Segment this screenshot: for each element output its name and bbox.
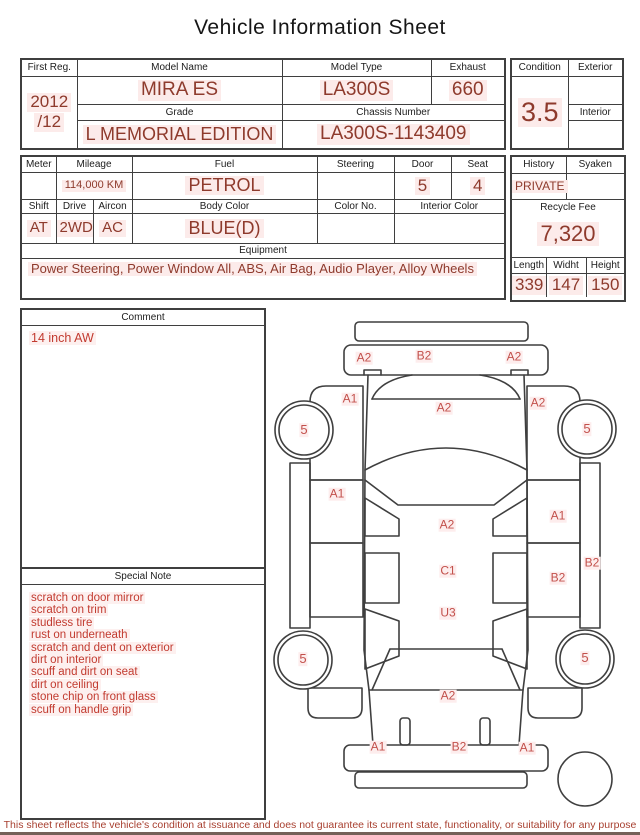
meter-header: Meter (21, 156, 56, 172)
special-note-item: scratch on door mirror (22, 592, 264, 604)
door-value: 5 (394, 172, 451, 199)
special-note-item: scuff and dirt on seat (22, 666, 264, 678)
vehicle-identity-table: First Reg. Model Name Model Type Exhaust… (20, 58, 506, 150)
width-header: Widht (546, 258, 586, 273)
marker-front-bumper-right: A2 (506, 351, 523, 364)
special-note-item: scratch on trim (22, 604, 264, 616)
special-note-box: Special Note scratch on door mirror scra… (20, 567, 266, 820)
color-no-header: Color No. (317, 199, 394, 213)
rear-strip-shape (355, 772, 527, 788)
fuel-value: PETROL (132, 172, 317, 199)
special-note-list: scratch on door mirror scratch on trim s… (22, 585, 264, 716)
seat-value: 4 (451, 172, 505, 199)
first-reg-value: 2012 /12 (21, 76, 77, 149)
left-sill-shape (290, 463, 310, 628)
model-name-value: MIRA ES (77, 76, 282, 104)
special-note-item: dirt on ceiling (22, 679, 264, 691)
first-reg-month: /12 (34, 113, 64, 131)
exhaust-value: 660 (431, 76, 505, 104)
model-type-value: LA300S (282, 76, 431, 104)
special-note-item: scratch and dent on exterior (22, 642, 264, 654)
chassis-number-header: Chassis Number (282, 104, 505, 120)
drive-value: 2WD (56, 213, 93, 243)
length-value: 339 (512, 273, 546, 297)
marker-wheel-rear-left: 5 (298, 652, 307, 666)
grade-value: L MEMORIAL EDITION (77, 120, 282, 149)
exhaust-header: Exhaust (431, 59, 505, 76)
aircon-header: Aircon (93, 199, 132, 213)
mileage-header: Mileage (56, 156, 132, 172)
special-note-item: stone chip on front glass (22, 691, 264, 703)
special-note-item: scuff on handle grip (22, 704, 264, 716)
marker-hood: A2 (436, 402, 453, 415)
front-arch-left (372, 375, 412, 399)
left-front-window-tab (365, 498, 399, 536)
marker-wheel-front-right: 5 (582, 422, 591, 436)
condition-header: Condition (511, 59, 568, 76)
disclaimer-text: This sheet reflects the vehicle's condit… (0, 819, 640, 831)
dimensions-section: Length Widht Height 339 147 150 (512, 257, 624, 297)
special-note-item: rust on underneath (22, 629, 264, 641)
spare-tire-circle (558, 752, 612, 806)
tail-lamp-left (400, 718, 410, 745)
marker-roof-front: A2 (439, 519, 456, 532)
comment-text: 14 inch AW (22, 326, 264, 345)
front-arch-right (480, 375, 520, 399)
marker-front-bumper-left: A2 (356, 352, 373, 365)
drive-header: Drive (56, 199, 93, 213)
condition-block: Condition Exterior 3.5 Interior (510, 58, 624, 150)
syaken-header: Syaken (566, 157, 624, 173)
marker-rear-bumper-right: A1 (519, 742, 536, 755)
marker-left-front-fender: A1 (342, 393, 359, 406)
windshield-arc (365, 448, 527, 470)
recycle-fee-section: Recycle Fee 7,320 (512, 199, 624, 257)
exterior-value (568, 76, 623, 104)
history-value: PRIVATE (512, 173, 566, 199)
recycle-fee-value: 7,320 (512, 215, 624, 257)
equipment-header: Equipment (21, 243, 505, 258)
interior-header: Interior (568, 104, 623, 120)
grade-header: Grade (77, 104, 282, 120)
shift-header: Shift (21, 199, 56, 213)
length-header: Length (512, 258, 546, 273)
chassis-number-value: LA300S-1143409 (282, 120, 505, 149)
mileage-value: 114,000 KM (56, 172, 132, 199)
seat-header: Seat (451, 156, 505, 172)
fuel-header: Fuel (132, 156, 317, 172)
marker-right-front-door: A1 (550, 510, 567, 523)
marker-front-bumper-center: B2 (416, 350, 433, 363)
meter-value (21, 172, 56, 199)
aircon-value: AC (93, 213, 132, 243)
interior-color-header: Interior Color (394, 199, 505, 213)
marker-left-front-door: A1 (329, 488, 346, 501)
marker-rear-bumper-left: A1 (370, 741, 387, 754)
interior-value (568, 120, 623, 149)
marker-right-front-fender: A2 (530, 397, 547, 410)
left-rear-door-shape (310, 543, 363, 617)
condition-value: 3.5 (511, 76, 568, 149)
front-strip-shape (355, 322, 528, 341)
car-damage-diagram: A2 B2 A2 A1 A2 A2 5 5 A1 A2 A1 C1 B2 B2 … (270, 312, 640, 812)
right-sill-shape (580, 463, 600, 628)
syaken-value (566, 173, 624, 199)
rear-window-shape (369, 649, 523, 690)
left-c-pillar-tab (365, 609, 399, 669)
marker-rear-bumper-center: B2 (451, 741, 468, 754)
left-rear-window-tab (365, 553, 399, 603)
special-note-item: studless tire (22, 617, 264, 629)
left-rear-corner-shape (308, 688, 362, 718)
right-rear-window-tab (493, 553, 527, 603)
model-name-header: Model Name (77, 59, 282, 76)
model-type-header: Model Type (282, 59, 431, 76)
first-reg-header: First Reg. (21, 59, 77, 76)
marker-wheel-rear-right: 5 (580, 651, 589, 665)
special-note-item: dirt on interior (22, 654, 264, 666)
width-value: 147 (546, 273, 586, 297)
history-header: History (512, 157, 566, 173)
marker-roof-center: C1 (439, 565, 456, 578)
marker-wheel-front-left: 5 (299, 423, 308, 437)
body-color-value: BLUE(D) (132, 213, 317, 243)
right-front-window-tab (493, 498, 527, 536)
roof-front-edge (365, 480, 527, 505)
tail-lamp-right (480, 718, 490, 745)
comment-header: Comment (22, 310, 264, 326)
special-note-header: Special Note (22, 569, 264, 585)
equipment-value: Power Steering, Power Window All, ABS, A… (21, 258, 505, 299)
recycle-fee-header: Recycle Fee (512, 200, 624, 215)
marker-rear-hatch: A2 (440, 690, 457, 703)
first-reg-year: 2012 (27, 93, 71, 111)
color-no-value (317, 213, 394, 243)
exterior-header: Exterior (568, 59, 623, 76)
interior-color-value (394, 213, 505, 243)
marker-roof-rear: U3 (439, 607, 456, 620)
height-value: 150 (586, 273, 624, 297)
right-rear-corner-shape (528, 688, 582, 718)
history-block: History Syaken PRIVATE Recycle Fee 7,320… (510, 155, 626, 302)
spec-table: Meter Mileage Fuel Steering Door Seat 11… (20, 155, 506, 300)
history-section: History Syaken PRIVATE (512, 157, 624, 199)
body-color-header: Body Color (132, 199, 317, 213)
page-title: Vehicle Information Sheet (0, 16, 640, 40)
door-header: Door (394, 156, 451, 172)
steering-value (317, 172, 394, 199)
comment-box: Comment 14 inch AW (20, 308, 266, 570)
steering-header: Steering (317, 156, 394, 172)
height-header: Height (586, 258, 624, 273)
right-c-pillar-tab (493, 609, 527, 669)
shift-value: AT (21, 213, 56, 243)
marker-right-rear-door: B2 (550, 572, 567, 585)
marker-right-sill: B2 (584, 557, 601, 570)
